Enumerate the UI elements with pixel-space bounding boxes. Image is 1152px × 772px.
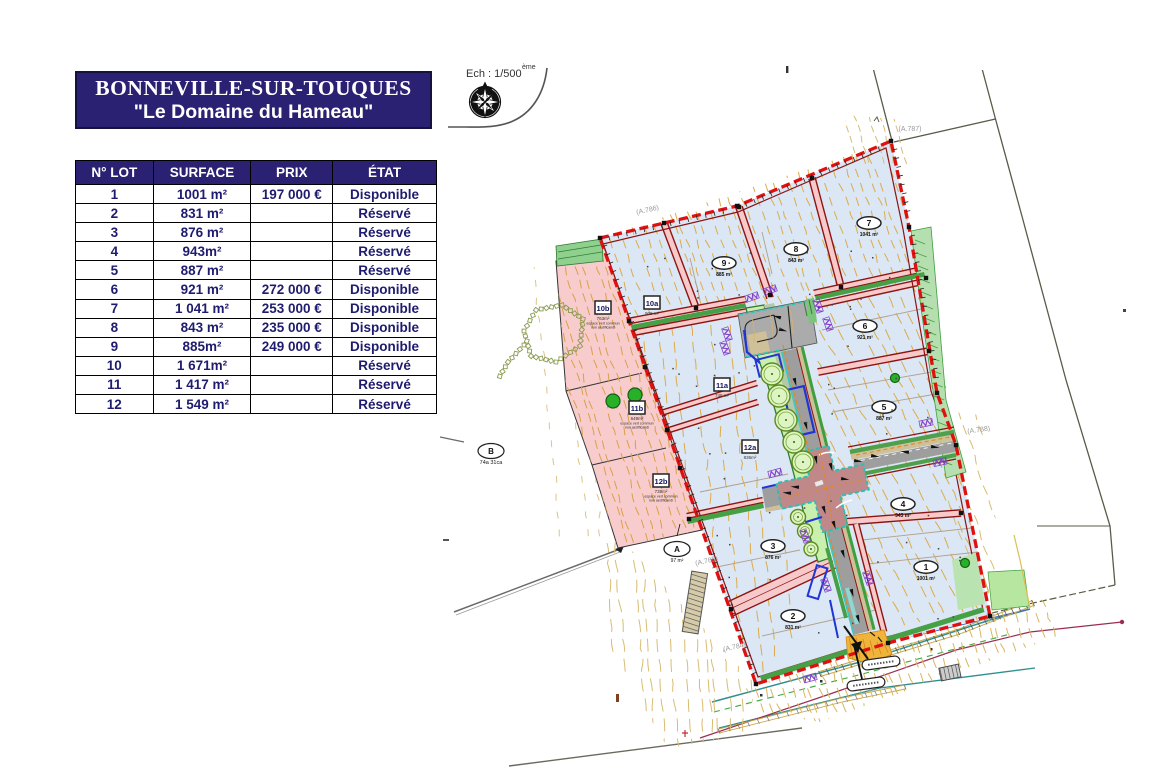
svg-text:3: 3 bbox=[771, 541, 776, 551]
svg-text:843 m²: 843 m² bbox=[788, 258, 804, 264]
svg-text:9: 9 bbox=[722, 258, 727, 268]
svg-text:10a: 10a bbox=[646, 299, 659, 308]
svg-text:12a: 12a bbox=[744, 443, 757, 452]
svg-text:943 m²: 943 m² bbox=[895, 513, 911, 519]
svg-text:1: 1 bbox=[924, 562, 929, 572]
svg-text:non aedificandi: non aedificandi bbox=[591, 326, 615, 330]
svg-text:A: A bbox=[674, 545, 680, 554]
svg-text:6: 6 bbox=[863, 321, 868, 331]
svg-text:748 m²: 748 m² bbox=[715, 393, 730, 398]
svg-text:5: 5 bbox=[882, 402, 887, 412]
svg-text:887 m²: 887 m² bbox=[876, 416, 892, 422]
svg-text:7: 7 bbox=[867, 218, 872, 228]
svg-text:74a 31ca: 74a 31ca bbox=[480, 460, 504, 466]
svg-text:B: B bbox=[488, 447, 494, 456]
svg-text:1041 m²: 1041 m² bbox=[860, 232, 879, 238]
svg-text:738m²: 738m² bbox=[655, 489, 668, 494]
svg-text:649m²: 649m² bbox=[631, 416, 644, 421]
svg-text:1001 m²: 1001 m² bbox=[917, 576, 936, 582]
svg-text:non aedificandi: non aedificandi bbox=[649, 499, 673, 503]
svg-text:11b: 11b bbox=[631, 404, 644, 413]
svg-text:10b: 10b bbox=[597, 304, 610, 313]
svg-text:11a: 11a bbox=[716, 381, 729, 390]
svg-text:836m²: 836m² bbox=[744, 455, 757, 460]
svg-text:(A.786): (A.786) bbox=[636, 205, 660, 217]
svg-text:2: 2 bbox=[791, 611, 796, 621]
svg-text:4: 4 bbox=[901, 499, 906, 509]
svg-text:876 m²: 876 m² bbox=[765, 555, 781, 561]
svg-text:921 m²: 921 m² bbox=[857, 335, 873, 341]
svg-text:8: 8 bbox=[794, 244, 799, 254]
svg-text:885 m²: 885 m² bbox=[716, 272, 732, 278]
svg-text:(A.788): (A.788) bbox=[967, 425, 991, 435]
svg-text:ème: ème bbox=[522, 64, 536, 71]
svg-text:831 m²: 831 m² bbox=[785, 625, 801, 631]
svg-text:908 m²: 908 m² bbox=[645, 311, 660, 316]
svg-text:(A.787): (A.787) bbox=[899, 126, 922, 133]
svg-text:97 m²: 97 m² bbox=[671, 558, 684, 564]
svg-text:Ech : 1/500: Ech : 1/500 bbox=[466, 68, 522, 80]
svg-text:non aedificandi: non aedificandi bbox=[625, 426, 649, 430]
svg-text:12b: 12b bbox=[655, 477, 668, 486]
svg-text:763m²: 763m² bbox=[597, 316, 610, 321]
